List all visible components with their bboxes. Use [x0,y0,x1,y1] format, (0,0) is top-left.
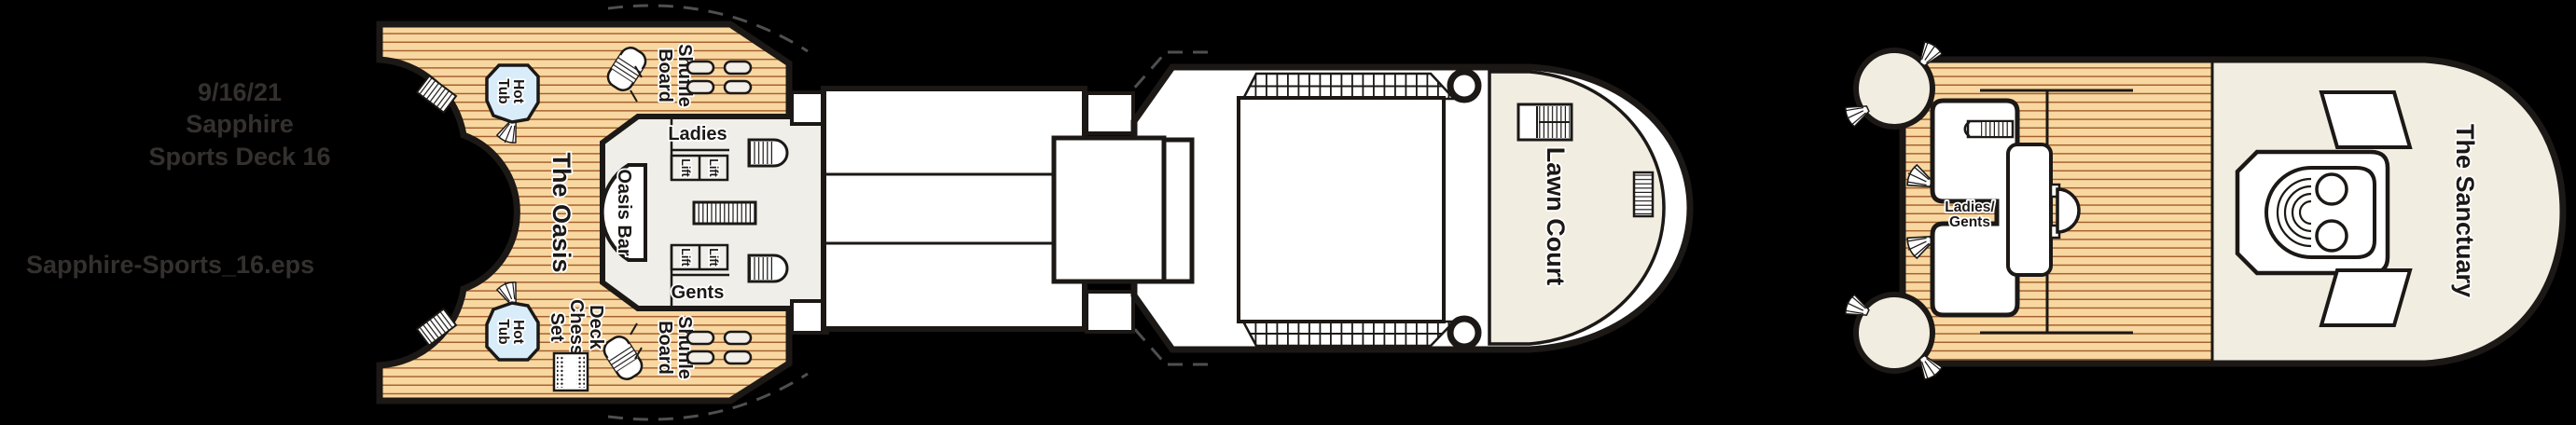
stairs-icon [1518,104,1572,140]
svg-text:Hot: Hot [510,320,526,344]
feature-label-shuffle-board: Shuffle Board [655,44,695,107]
deck-plan-drawing: 9/16/21 Sapphire Sports Deck 16 Sapphire… [0,0,2576,425]
sports-court [1239,98,1444,322]
lift-label: Lift [707,158,720,177]
aft-deckhouse: Oasis Bar Lift Lift Lift Lift Ladies Gen… [602,117,828,308]
bow-house-annex [2008,144,2051,275]
passage [1087,292,1133,332]
svg-text:Tub: Tub [495,319,511,344]
lounger [2321,270,2410,325]
pool-seat [2317,174,2347,204]
svg-text:Board: Board [655,48,675,103]
stairs-icon [1965,121,2013,137]
aft-deck-the-oasis: Hot Tub Hot Tub The Oasis Shuffle [380,24,828,401]
svg-text:The Oasis: The Oasis [547,152,575,272]
svg-text:Oasis Bar: Oasis Bar [614,169,634,256]
midship-house [1054,138,1164,281]
stairs-icon [694,202,755,224]
area-label-the-sanctuary: The Sanctuary [2451,124,2479,297]
sanctuary-pool [2237,152,2388,273]
svg-text:Deck: Deck [586,305,606,350]
ship-name: Sapphire [186,110,294,138]
stairs-icon [749,255,787,281]
svg-text:Gents: Gents [1949,214,1990,230]
lawn-court-section: Lawn Court [1134,67,1690,350]
svg-text:Board: Board [655,321,675,375]
svg-text:Shuffle: Shuffle [674,316,695,379]
midship-block [824,89,1085,329]
lift-label: Lift [679,158,692,177]
svg-text:The Sanctuary: The Sanctuary [2451,124,2479,297]
file-name: Sapphire-Sports_16.eps [26,251,314,279]
stairs-icon [749,140,787,166]
plan-header: 9/16/21 Sapphire Sports Deck 16 Sapphire… [26,78,331,279]
area-label-the-oasis: The Oasis [547,152,575,272]
room-label-ladies: Ladies [668,124,727,144]
court-post [1450,319,1478,347]
svg-text:Hot: Hot [510,79,526,103]
feature-label-shuffle-board: Shuffle Board [655,316,695,379]
ladder-icon [1634,172,1653,216]
room-label-gents: Gents [672,282,725,303]
bow-section-the-sanctuary: Ladies/ Gents The Sanctuary [1842,38,2563,382]
lift-label: Lift [707,248,720,267]
deck-name: Sports Deck 16 [148,143,330,171]
area-label-lawn-court: Lawn Court [1542,147,1570,286]
passage [1087,93,1133,133]
lounger [2321,92,2410,147]
svg-text:Set: Set [547,312,567,341]
deck-plan-page: 9/16/21 Sapphire Sports Deck 16 Sapphire… [0,0,2576,425]
svg-text:Lawn Court: Lawn Court [1542,147,1570,286]
svg-text:Shuffle: Shuffle [674,44,695,107]
pool-seat [2317,221,2347,251]
svg-text:Chess: Chess [566,299,587,355]
court-post [1450,72,1478,100]
svg-text:Tub: Tub [495,78,511,103]
svg-text:Ladies/: Ladies/ [1945,199,1995,215]
room-label-ladies-gents: Ladies/ Gents [1945,199,1995,230]
lift-label: Lift [679,248,692,267]
plan-date: 9/16/21 [198,78,282,106]
